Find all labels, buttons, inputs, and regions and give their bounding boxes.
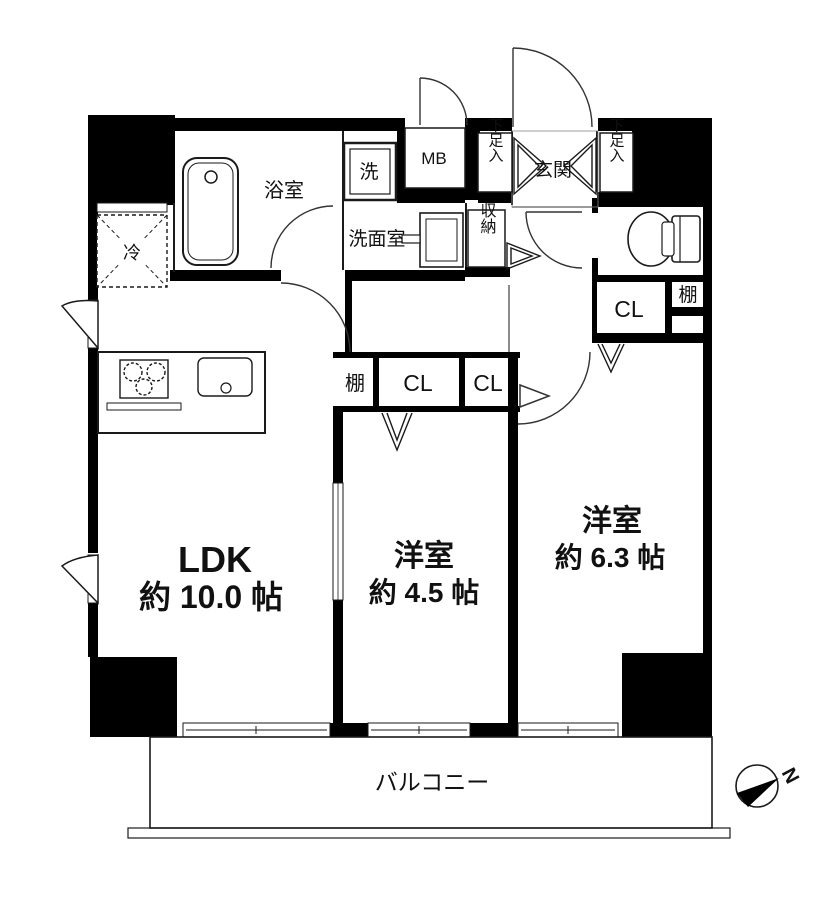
bathtub-icon (183, 158, 238, 265)
compass-north-label: N (777, 764, 803, 787)
storage-folding-door-icon (507, 243, 540, 269)
wall (508, 412, 518, 723)
shelf-right-label: 棚 (678, 284, 697, 306)
meter-box-label: MB (421, 149, 447, 168)
closet-folding-door-icon (382, 413, 412, 450)
bedroom-small-label: 洋室 (394, 539, 454, 573)
wall (333, 412, 343, 483)
wall (397, 128, 405, 188)
entrance-door-arc (513, 48, 592, 127)
wall (592, 258, 598, 275)
bedroom-large-door-leaf (520, 385, 549, 407)
floorplan-drawing: N 浴室 洗 MB 洗面室 玄関 下足入 下足入 収納 冷 棚 CL CL CL… (0, 0, 816, 906)
wall (333, 406, 520, 412)
entrance-label: 玄関 (534, 159, 572, 181)
wall-pillar (622, 653, 703, 737)
storage-label: 収納 (478, 202, 497, 235)
meter-box-door-arc (420, 78, 467, 125)
burner-icon (124, 363, 142, 381)
wall (88, 115, 175, 205)
wall (465, 267, 510, 277)
casement-window-icon (62, 301, 98, 348)
wall (592, 198, 703, 207)
ldk-label: LDK (178, 539, 252, 580)
wall (592, 333, 712, 343)
wall (592, 205, 598, 213)
wall (172, 118, 405, 131)
bedroom-large-size-label: 約 6.3 帖 (555, 541, 665, 573)
wall (345, 281, 352, 352)
burner-icon (147, 363, 165, 381)
washroom-label: 洗面室 (348, 228, 405, 250)
wall (508, 352, 518, 412)
balcony-label: バルコニー (375, 769, 490, 795)
wall-pillar (90, 657, 177, 737)
closet-folding-door-icon (598, 344, 624, 372)
casement-window-icon (62, 555, 98, 603)
wall (668, 307, 712, 316)
burner-icon (136, 379, 152, 395)
wall (333, 352, 520, 358)
washer-pan-label: 洗 (359, 161, 378, 183)
sliding-door (518, 723, 618, 737)
shelf-strip (97, 203, 167, 212)
wall (470, 723, 518, 737)
wall (459, 358, 465, 406)
closet-bedroom-large-label: CL (614, 296, 644, 322)
bedroom-small-size-label: 約 4.5 帖 (369, 576, 479, 608)
wall (88, 603, 98, 657)
sliding-door (368, 723, 470, 737)
grill-icon (107, 403, 181, 410)
wall (333, 600, 343, 737)
closet-middle-right-label: CL (473, 370, 503, 396)
bathroom-label: 浴室 (264, 179, 304, 202)
shoe-cabinet-left-label: 下足入 (487, 118, 504, 163)
wall (592, 282, 597, 333)
wall (88, 348, 98, 553)
floorplan-page: N 浴室 洗 MB 洗面室 玄関 下足入 下足入 収納 冷 棚 CL CL CL… (0, 0, 816, 906)
bathroom-door-arc (271, 206, 333, 268)
sliding-door (183, 723, 330, 737)
toilet-icon (628, 212, 700, 266)
compass: N (736, 764, 803, 807)
wall (345, 270, 465, 281)
kitchen-counter (98, 352, 265, 433)
drain-icon (221, 383, 231, 393)
shoe-cabinet-right-label: 下足入 (608, 118, 625, 163)
wall (592, 275, 712, 282)
wall (632, 131, 703, 200)
closet-middle-left-label: CL (403, 370, 433, 396)
ldk-door-arc (281, 283, 350, 352)
refrigerator-label: 冷 (123, 243, 141, 263)
wall (170, 270, 281, 281)
shelf-middle-label: 棚 (345, 372, 365, 395)
hall-door-arc (526, 212, 582, 268)
washbasin-icon (402, 213, 463, 267)
bedroom-large-label: 洋室 (582, 504, 642, 538)
wall (373, 358, 379, 406)
wall (703, 118, 712, 737)
wall (665, 275, 672, 333)
ldk-size-label: 約 10.0 帖 (139, 579, 283, 615)
